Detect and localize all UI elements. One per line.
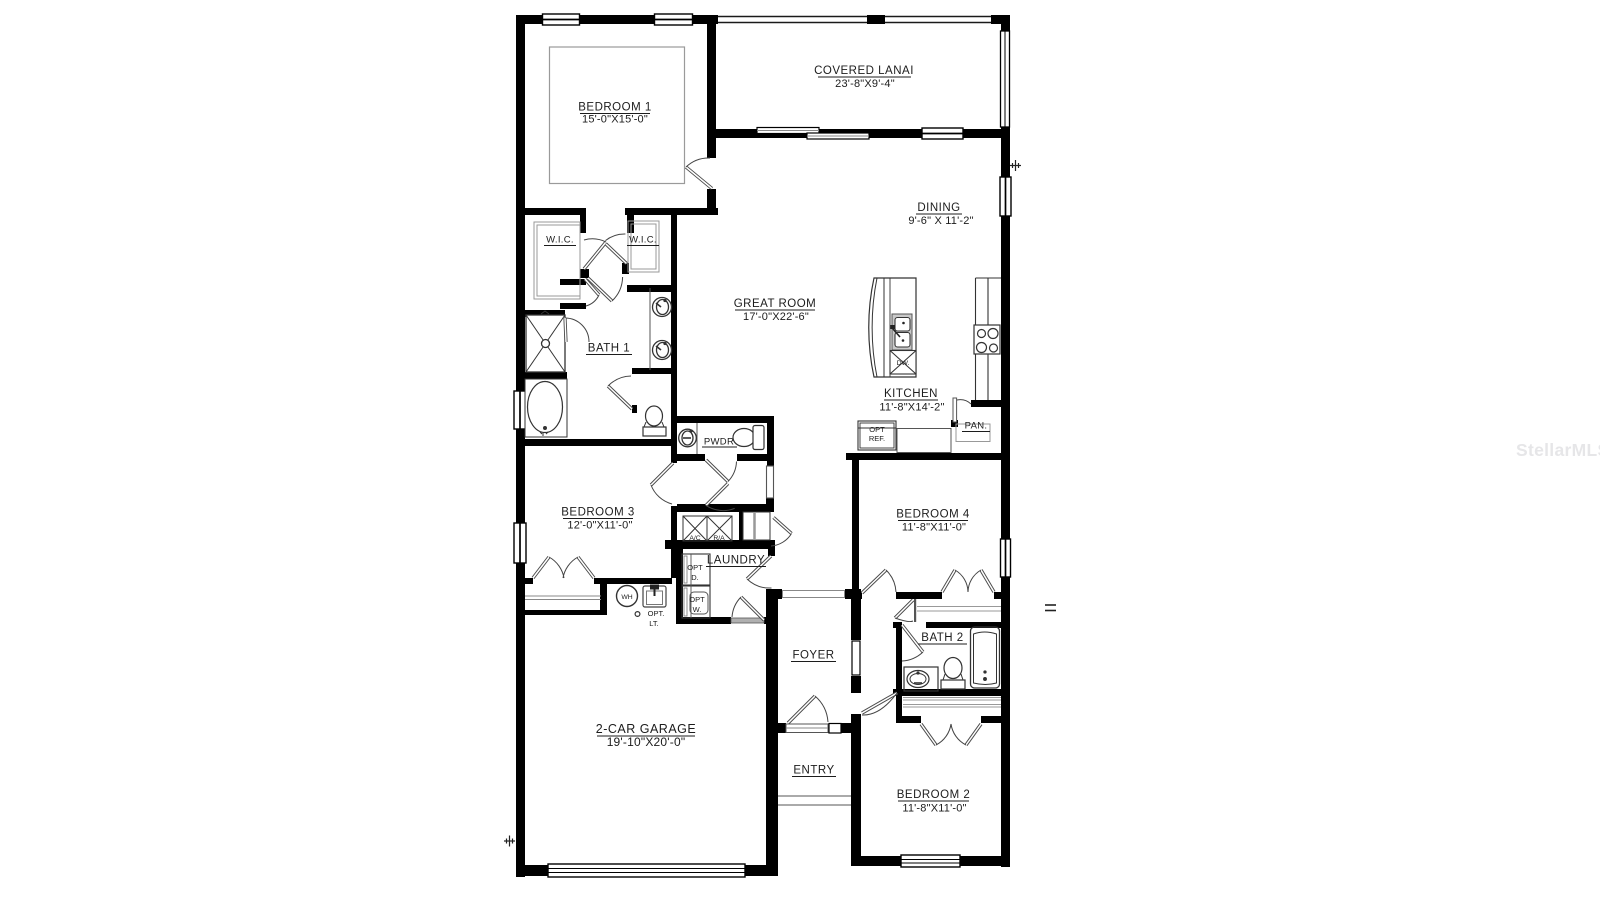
svg-text:11'-8"X11'-0": 11'-8"X11'-0"	[902, 522, 966, 534]
svg-text:15'-0"X15'-0": 15'-0"X15'-0"	[582, 114, 648, 126]
svg-text:23'-8"X9'-4": 23'-8"X9'-4"	[835, 78, 895, 90]
svg-text:BATH 2: BATH 2	[921, 632, 963, 644]
svg-text:W.: W.	[693, 605, 702, 614]
svg-text:11'-8"X14'-2": 11'-8"X14'-2"	[879, 402, 944, 414]
svg-text:9'-6" X 11'-2": 9'-6" X 11'-2"	[908, 215, 973, 227]
svg-text:11'-8"X11'-0": 11'-8"X11'-0"	[902, 803, 966, 815]
svg-text:BEDROOM 3: BEDROOM 3	[561, 507, 635, 519]
svg-text:BEDROOM 2: BEDROOM 2	[897, 789, 971, 801]
svg-text:PWDR: PWDR	[704, 437, 734, 448]
svg-text:LT.: LT.	[649, 619, 658, 628]
svg-text:D.: D.	[691, 573, 699, 582]
svg-text:StellarMLS: StellarMLS	[1516, 440, 1600, 460]
svg-text:WH: WH	[621, 594, 632, 601]
svg-text:LAUNDRY: LAUNDRY	[707, 555, 765, 567]
svg-text:2-CAR GARAGE: 2-CAR GARAGE	[596, 722, 696, 736]
svg-text:17'-0"X22'-6": 17'-0"X22'-6"	[743, 311, 809, 323]
svg-text:BEDROOM 4: BEDROOM 4	[896, 509, 970, 521]
svg-text:OPT: OPT	[869, 425, 885, 434]
svg-text:OPT: OPT	[689, 595, 705, 604]
svg-text:COVERED LANAI: COVERED LANAI	[814, 65, 914, 77]
svg-text:W.I.C.: W.I.C.	[546, 235, 574, 246]
svg-text:REF.: REF.	[869, 434, 885, 443]
svg-text:19'-10"X20'-0": 19'-10"X20'-0"	[607, 735, 686, 749]
svg-text:A/C: A/C	[689, 535, 700, 542]
svg-text:12'-0"X11'-0": 12'-0"X11'-0"	[567, 520, 632, 532]
svg-text:FOYER: FOYER	[792, 650, 834, 662]
svg-text:PAN.: PAN.	[965, 421, 988, 432]
svg-text:R/A: R/A	[713, 535, 725, 542]
svg-text:DW.: DW.	[897, 360, 910, 367]
svg-text:KITCHEN: KITCHEN	[884, 388, 938, 400]
svg-text:DINING: DINING	[917, 202, 960, 214]
svg-text:ENTRY: ENTRY	[793, 765, 834, 777]
svg-text:OPT: OPT	[687, 563, 703, 572]
svg-text:BEDROOM 1: BEDROOM 1	[578, 102, 652, 114]
svg-text:OPT.: OPT.	[648, 609, 665, 618]
svg-text:BATH 1: BATH 1	[588, 343, 630, 355]
svg-text:GREAT ROOM: GREAT ROOM	[734, 298, 817, 310]
svg-text:W.I.C.: W.I.C.	[629, 235, 657, 246]
